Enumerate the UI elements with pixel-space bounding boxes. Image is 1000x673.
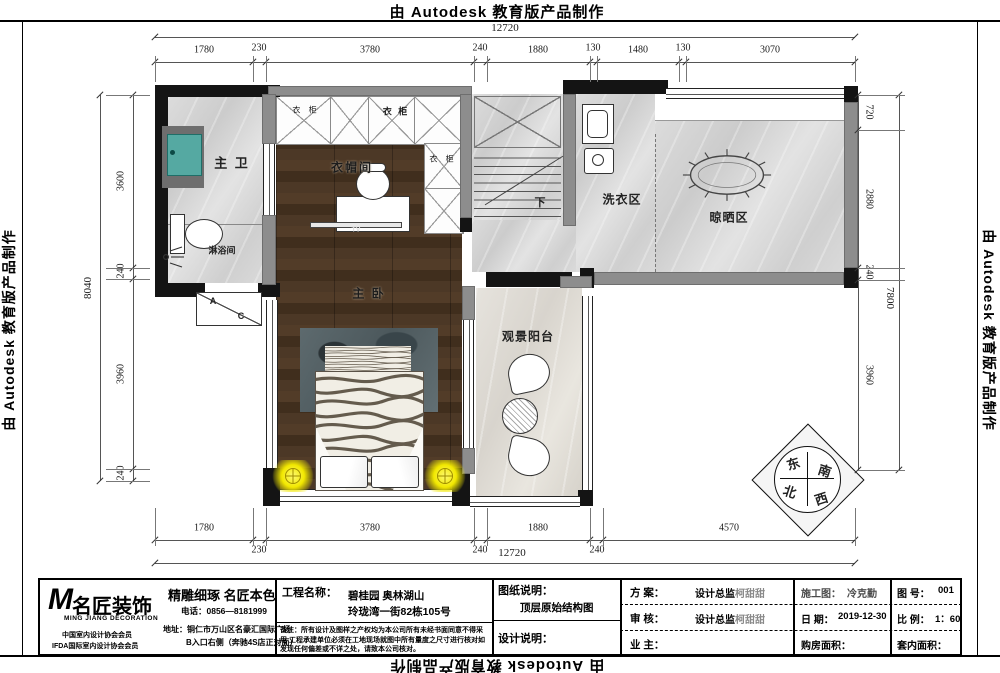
dim-bot-0: 1780 (194, 523, 214, 534)
project-line-1: 碧桂园 奥林湖山 (348, 588, 424, 603)
review-value: 设计总监柯甜甜 (695, 611, 765, 626)
pillow (320, 456, 368, 488)
room-label-laundry: 洗衣区 (602, 191, 641, 208)
compass: 东 南 北 西 (752, 428, 864, 540)
dim-extension (686, 56, 687, 82)
dim-extension (858, 268, 905, 269)
sliding-door-bath (263, 144, 275, 215)
room-label-tv: TV (352, 227, 361, 234)
room-label-wardrobe-2: 衣 柜 (383, 105, 410, 118)
watermark-left: 由 Autodesk 教育版产品制作 (0, 229, 19, 431)
dim-line-left-seg (133, 95, 134, 481)
plan-value: 设计总监柯甜甜 (695, 585, 765, 600)
dim-extension (487, 56, 488, 82)
light-icon (437, 468, 453, 484)
watermark-top: 由 Autodesk 教育版产品制作 (390, 1, 605, 22)
dim-extension (106, 469, 150, 470)
dim-extension (474, 508, 475, 546)
balcony-table (502, 398, 538, 434)
inner-area-label: 套内面积： (897, 637, 947, 652)
plan-label: 方 案： (630, 585, 664, 600)
drying-rack (681, 146, 773, 204)
tb-divider-dashed (620, 630, 962, 631)
wall-segment (844, 268, 858, 288)
scale-value: 1：60 (935, 611, 960, 625)
wardrobe-cell (424, 188, 464, 234)
phone: 电话：0856—8181999 (181, 605, 267, 617)
dim-left-total: 8040 (82, 277, 94, 299)
laundry-sink-basin (592, 154, 604, 166)
dim-tick (851, 559, 858, 566)
dim-extension (590, 56, 591, 82)
project-line-2: 玲珑湾一街82栋105号 (348, 604, 451, 619)
wall-segment (262, 215, 276, 285)
dim-top-total: 12720 (491, 22, 519, 34)
project-note: 备注：所有设计及图样之产权均为本公司所有未经书面同意不得采用 工程承建单位必须在… (280, 626, 488, 655)
pillow (371, 456, 419, 488)
dim-extension (858, 95, 905, 96)
dim-tick (851, 33, 858, 40)
dim-extension (106, 481, 150, 482)
room-label-master-bath: 主 卫 (214, 153, 250, 172)
drawing-label: 图纸说明： (498, 582, 553, 598)
dim-bot-3: 240 (473, 545, 488, 556)
wall-segment (594, 272, 844, 285)
figure-label: 图 号： (897, 585, 930, 600)
dim-top-8: 3070 (760, 45, 780, 56)
review-label: 审 核： (630, 611, 664, 626)
hall-floor (472, 220, 576, 272)
sliding-door-balcony (463, 320, 474, 448)
date-value: 2019-12-30 (838, 611, 887, 622)
window-balcony-bottom (470, 496, 580, 507)
zone-divider-dashed (655, 134, 656, 272)
owner-label: 业 主： (630, 637, 664, 652)
dim-bot-1: 230 (252, 545, 267, 556)
dim-top-7: 130 (676, 43, 691, 54)
ac-label-a: A (210, 296, 217, 306)
drying-edge (655, 120, 844, 121)
logo-m: M (48, 583, 71, 617)
bed-bench (325, 346, 411, 374)
tb-divider-dashed (620, 604, 962, 605)
wall-segment (844, 86, 858, 102)
floorplan-canvas: 由 Autodesk 教育版产品制作 由 Autodesk 教育版产品制作 由 … (0, 0, 1000, 673)
dim-right-total: 7800 (884, 287, 896, 309)
scale-label: 比 例： (897, 611, 930, 626)
dim-left-3: 240 (116, 466, 127, 481)
dim-left-2: 3960 (116, 364, 127, 384)
dim-top-0: 1780 (194, 45, 214, 56)
wall-segment (262, 94, 276, 144)
figure-value: 001 (938, 585, 954, 596)
dim-line-right-total (899, 95, 900, 470)
address-line-1: 地址：铜仁市万山区名豪汇国际广场 (163, 624, 291, 635)
dim-right-1: 2880 (864, 189, 875, 209)
dim-extension (155, 508, 156, 546)
dim-extension (590, 508, 591, 546)
construction-label: 施工图： (801, 585, 841, 600)
wardrobe-cell (368, 96, 416, 145)
wardrobe-cell (276, 96, 332, 145)
project-label: 工程名称： (282, 584, 337, 600)
room-label-wardrobe-right: 衣 柜 (429, 154, 456, 165)
dim-bot-5: 240 (590, 545, 605, 556)
watermark-bottom: 由 Autodesk 教育版产品制作 (390, 656, 605, 673)
bathroom-sink (167, 134, 202, 176)
tb-divider (275, 622, 492, 623)
dim-extension (855, 56, 856, 82)
dim-right-2: 240 (864, 265, 875, 280)
room-label-shower: 淋浴间 (208, 244, 235, 257)
wall-segment (560, 276, 592, 288)
tb-divider (793, 578, 795, 656)
dim-left-0: 3600 (116, 171, 127, 191)
nightstand-light (422, 460, 468, 492)
dim-top-1: 230 (252, 43, 267, 54)
dim-bottom-total: 12720 (498, 547, 526, 559)
dim-bot-6: 4570 (719, 523, 739, 534)
dim-extension (487, 508, 488, 546)
washing-machine-door (587, 110, 608, 138)
wardrobe-cell (330, 96, 370, 145)
ac-platform (196, 292, 262, 326)
dim-right-3: 3960 (864, 365, 875, 385)
dim-tick (96, 477, 103, 484)
dim-top-2: 3780 (360, 45, 380, 56)
frame-left (22, 20, 23, 656)
dim-left-1: 240 (116, 264, 127, 279)
dim-extension (679, 56, 680, 82)
wall-segment (844, 102, 858, 268)
dim-extension (106, 95, 150, 96)
dim-extension (253, 56, 254, 82)
dim-line-left-total (100, 95, 101, 481)
window-top-right (666, 88, 844, 99)
dim-line-top-total (155, 37, 855, 38)
ac-label-c: C (238, 311, 245, 321)
room-label-wardrobe-1: 衣 柜 (292, 105, 319, 116)
dim-right-0: 720 (864, 105, 875, 120)
dim-extension (858, 470, 905, 471)
wall-segment (462, 286, 475, 320)
dim-extension (474, 56, 475, 82)
wall-segment (268, 86, 472, 96)
dim-top-5: 130 (586, 43, 601, 54)
logo-subtitle: MING JIANG DECORATION (64, 615, 158, 622)
wall-segment (563, 80, 668, 94)
tb-divider (890, 578, 892, 656)
wall-segment (578, 490, 593, 506)
wall-segment (563, 94, 576, 226)
room-label-bedroom: 主 卧 (352, 285, 385, 302)
window-bedroom-left (266, 300, 278, 468)
dim-extension (155, 56, 156, 82)
tb-divider (492, 578, 494, 656)
logo-member-2: IFDA国际室内设计协会会员 (52, 641, 138, 651)
slogan: 精雕细琢 名匠本色 (168, 585, 276, 604)
dim-top-3: 240 (473, 43, 488, 54)
nightstand-light (270, 460, 316, 492)
tb-divider (492, 620, 620, 621)
sink-drain (170, 150, 175, 155)
dim-bot-2: 3780 (360, 523, 380, 534)
purchase-area-label: 购房面积： (801, 637, 851, 652)
dim-extension (603, 508, 604, 546)
dim-extension (253, 508, 254, 546)
design-label: 设计说明： (498, 630, 553, 646)
stair-landing (474, 96, 561, 148)
tb-divider (620, 578, 622, 656)
construction-value: 冷克勤 (847, 585, 877, 600)
dim-line-top-seg (155, 62, 855, 63)
room-label-balcony: 观景阳台 (502, 328, 554, 345)
dim-line-bottom-total (155, 563, 855, 564)
dim-line-bottom-seg (155, 540, 855, 541)
dim-extension (597, 56, 598, 82)
dim-extension (858, 130, 905, 131)
shower-head-icon (160, 244, 186, 270)
dim-top-6: 1480 (628, 45, 648, 56)
wardrobe-cell (414, 96, 464, 145)
wardrobe-cell (424, 143, 464, 190)
dim-extension (106, 268, 150, 269)
stairs-down-label: 下 (535, 194, 546, 210)
room-label-closet: 衣帽间 (331, 159, 373, 176)
dim-bot-4: 1880 (528, 523, 548, 534)
date-label: 日 期： (801, 611, 834, 626)
dim-line-right-seg (858, 95, 859, 470)
logo-member-1: 中国室内设计协会会员 (62, 630, 132, 640)
dim-top-4: 1880 (528, 45, 548, 56)
dim-extension (106, 279, 150, 280)
room-label-drying: 晾晒区 (709, 209, 748, 226)
dim-extension (858, 280, 905, 281)
drawing-value: 顶层原始结构图 (520, 600, 594, 615)
dim-extension (266, 508, 267, 546)
wall-segment (460, 94, 472, 218)
dim-extension (855, 508, 856, 546)
window-balcony-right (582, 296, 593, 490)
frame-right (977, 20, 978, 656)
dim-extension (266, 56, 267, 82)
watermark-right: 由 Autodesk 教育版产品制作 (979, 229, 999, 431)
wall-segment (460, 216, 472, 232)
light-icon (285, 468, 301, 484)
